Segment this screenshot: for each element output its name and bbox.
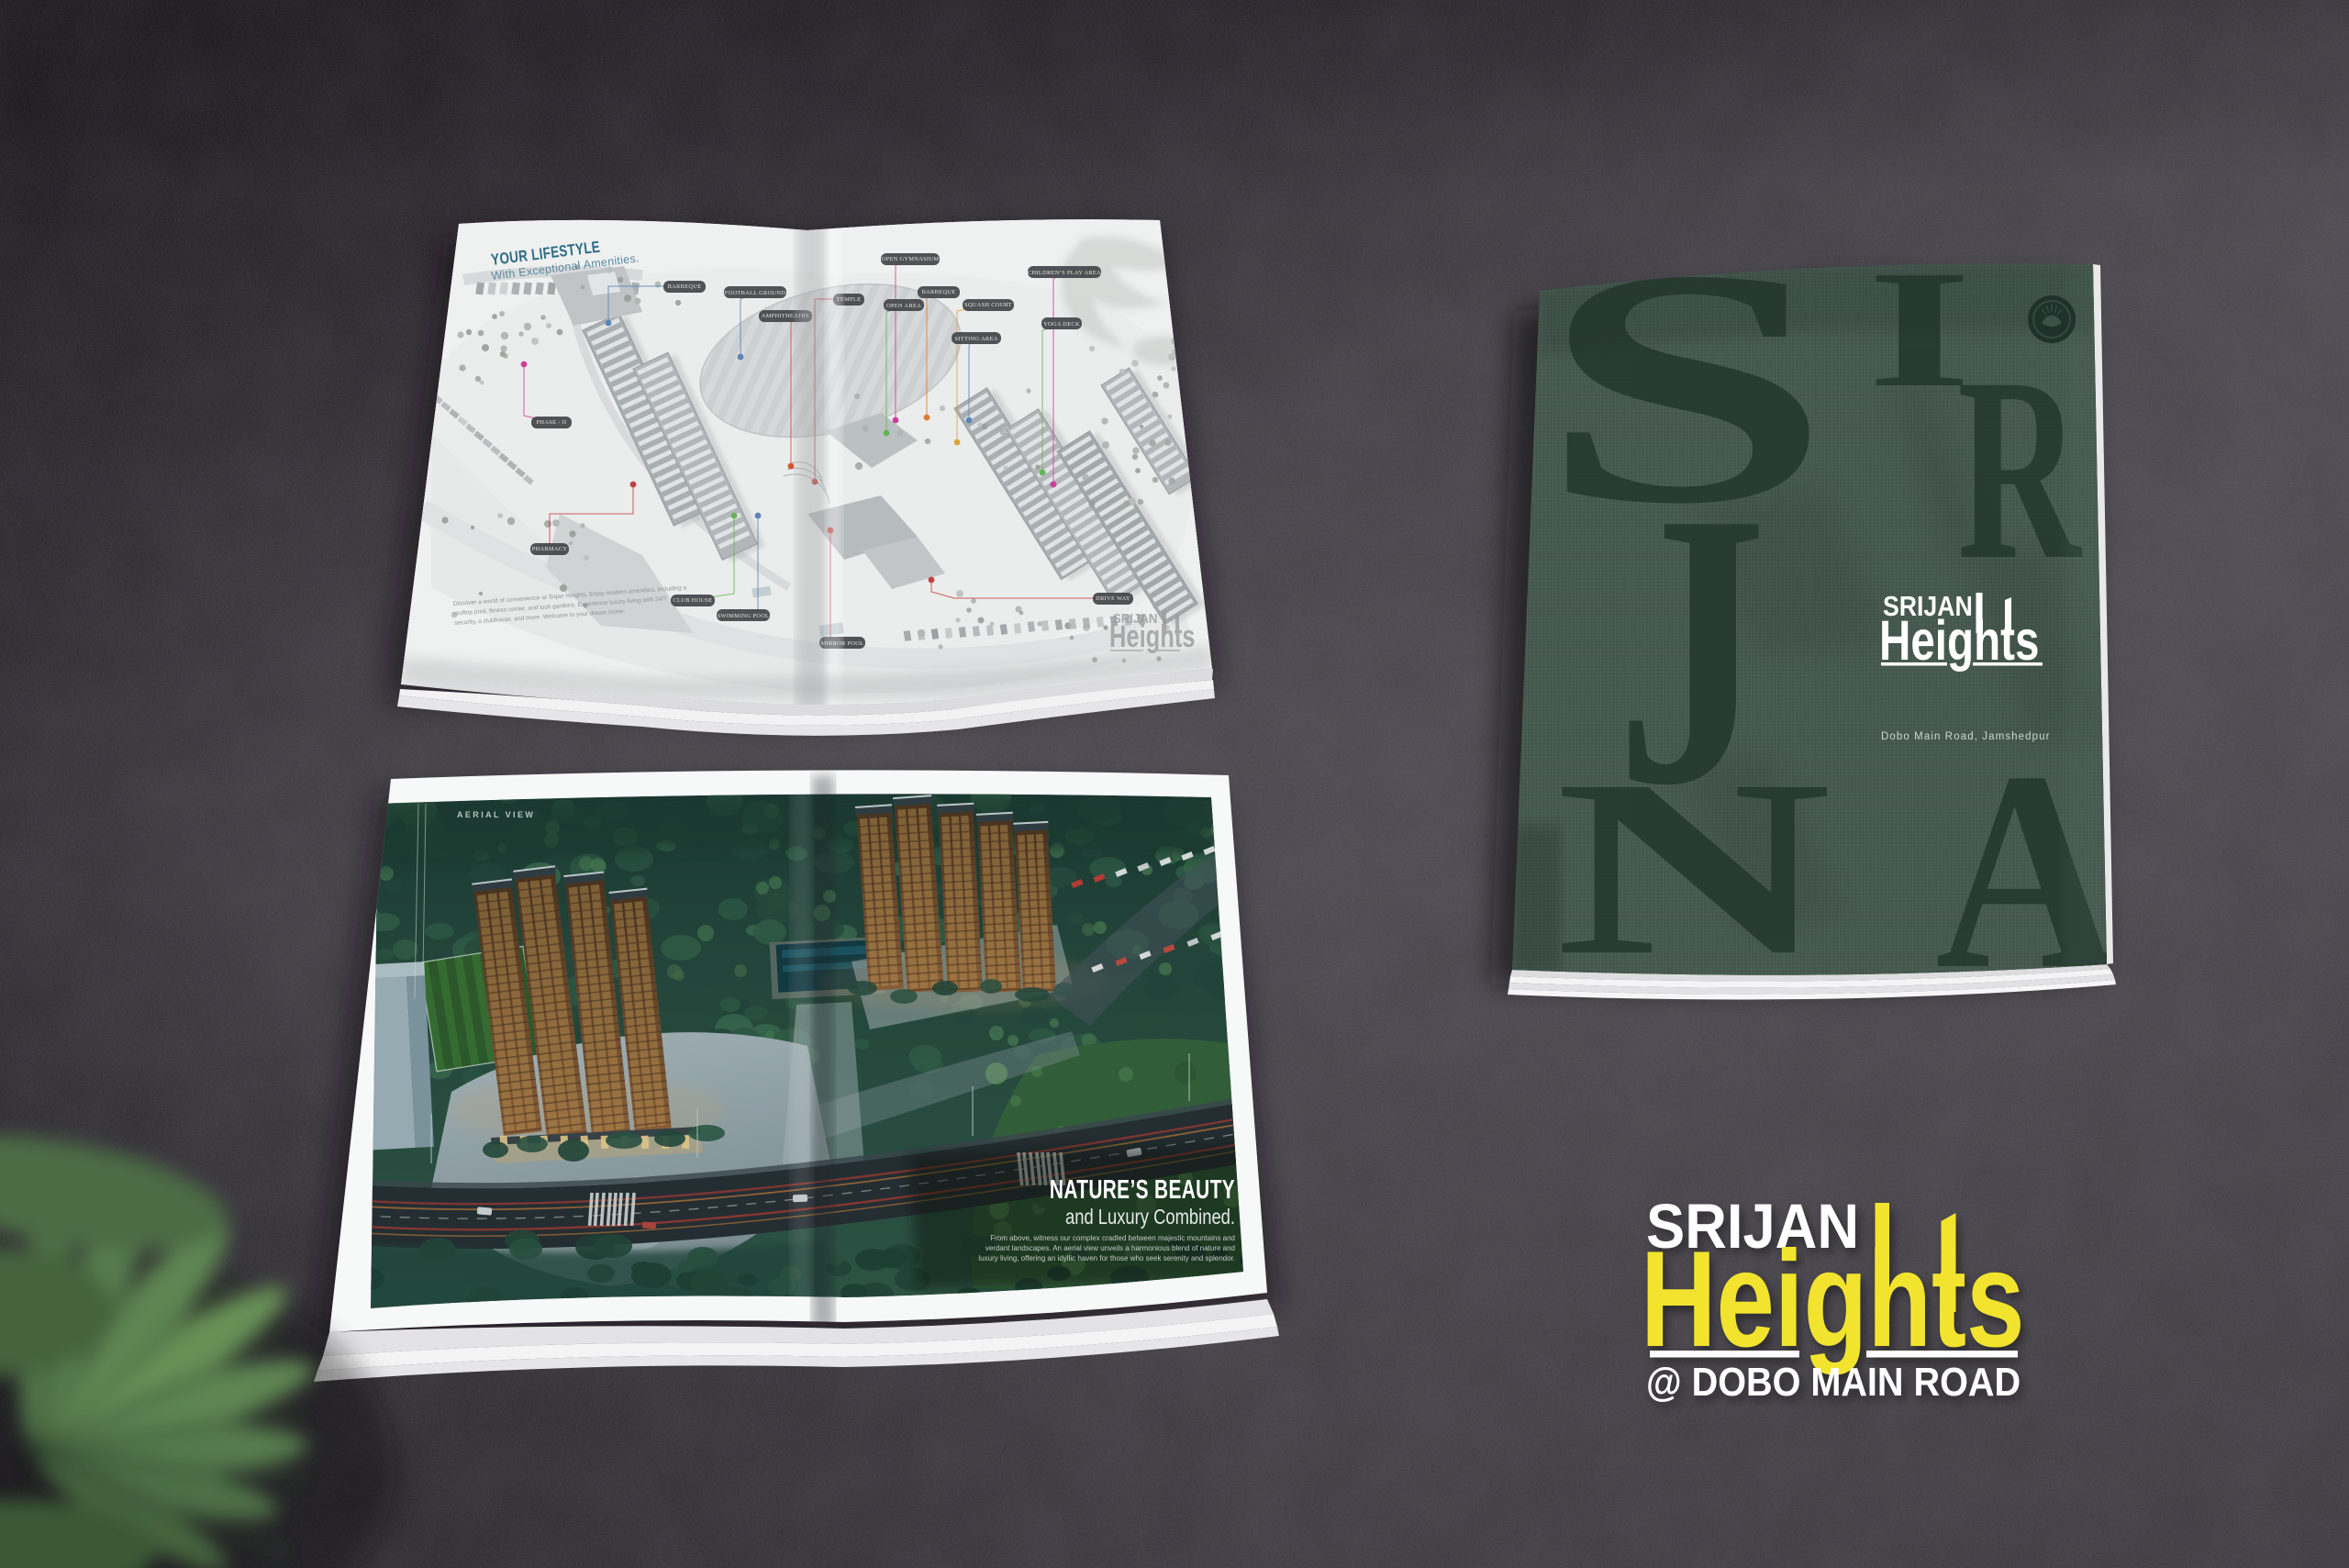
svg-text:NATURE’S BEAUTY: NATURE’S BEAUTY [1050,1175,1235,1205]
svg-text:YOGA DECK: YOGA DECK [1043,321,1080,328]
svg-text:SWIMMING POOL: SWIMMING POOL [718,613,770,619]
svg-text:AERIAL VIEW: AERIAL VIEW [457,810,535,819]
svg-text:From above, witness our comple: From above, witness our complex cradled … [990,1234,1235,1242]
svg-text:CLUB HOUSE: CLUB HOUSE [674,597,713,604]
svg-text:SQUASH COURT: SQUASH COURT [964,302,1012,308]
svg-text:PHASE - II: PHASE - II [537,419,567,426]
svg-text:PHARMACY: PHARMACY [532,546,568,552]
svg-text:OPEN GYMNASIUM: OPEN GYMNASIUM [882,256,940,262]
svg-text:DRIVE WAY: DRIVE WAY [1096,595,1130,602]
svg-text:OPEN AREA: OPEN AREA [886,303,921,309]
svg-text:and Luxury Combined.: and Luxury Combined. [1065,1206,1235,1229]
svg-text:luxury living, offering an idy: luxury living, offering an idyllic haven… [978,1254,1235,1262]
svg-text:@ DOBO MAIN ROAD: @ DOBO MAIN ROAD [1646,1359,2021,1404]
svg-text:SITTING AREA: SITTING AREA [954,336,997,342]
svg-text:BARBEQUE: BARBEQUE [922,289,956,295]
svg-text:BARBEQUE: BARBEQUE [668,284,702,290]
svg-text:CHILDREN’S PLAY AREA: CHILDREN’S PLAY AREA [1028,270,1101,276]
svg-text:R: R [1957,324,2082,615]
svg-text:N: N [1555,728,1832,1007]
svg-text:verdant landscapes. An aerial: verdant landscapes. An aerial view unvei… [985,1244,1235,1252]
svg-text:Dobo Main Road, Jamshedpur: Dobo Main Road, Jamshedpur [1881,731,2051,742]
svg-text:FOOTBALL GROUND: FOOTBALL GROUND [725,290,786,296]
